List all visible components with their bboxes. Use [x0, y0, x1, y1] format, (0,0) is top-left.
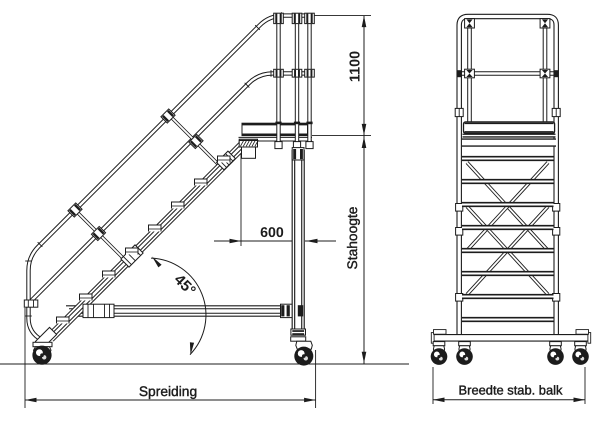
svg-text:Stahoogte: Stahoogte [345, 206, 360, 269]
svg-text:600: 600 [260, 225, 284, 241]
svg-text:Breedte stab. balk: Breedte stab. balk [459, 383, 563, 398]
svg-text:Spreiding: Spreiding [139, 384, 197, 399]
svg-text:1100: 1100 [348, 51, 364, 82]
